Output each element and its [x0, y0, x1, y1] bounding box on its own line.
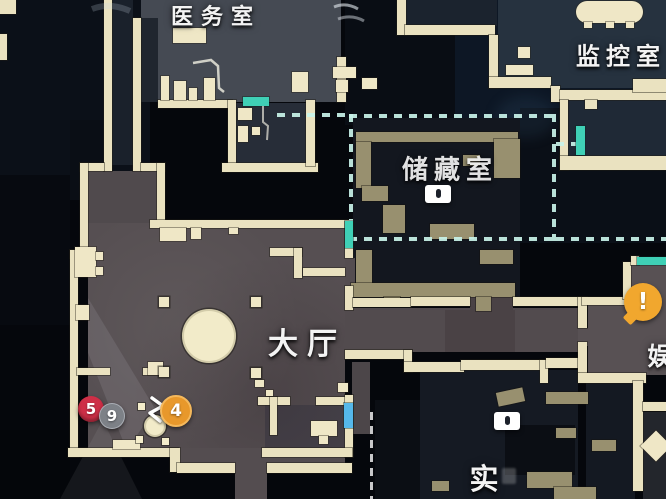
wall-segment — [345, 286, 353, 310]
furniture — [333, 67, 356, 78]
chair — [96, 267, 103, 275]
wall-olive — [383, 205, 405, 233]
minimap: 医务室 监控室 储藏室 大厅 娱 实 5 9 4 ! — [0, 0, 666, 499]
furniture-olive — [546, 392, 588, 404]
wall-olive — [356, 142, 371, 188]
wall-segment — [70, 250, 78, 457]
wall-segment — [222, 163, 318, 172]
wall-olive — [476, 297, 491, 311]
furniture-table — [75, 247, 96, 277]
furniture-olive — [527, 472, 572, 488]
pillar — [159, 367, 169, 377]
console-foot — [626, 22, 634, 28]
furniture — [238, 108, 252, 120]
wall-segment — [158, 100, 232, 108]
round-table — [182, 309, 236, 363]
player-count-marker-gray[interactable]: 9 — [99, 403, 125, 429]
furniture — [174, 81, 186, 100]
wall-segment — [177, 463, 235, 473]
room-floor-top-center — [405, 0, 497, 26]
wall-segment — [546, 358, 582, 368]
wall-segment — [633, 381, 643, 491]
alert-icon: ! — [638, 289, 649, 315]
wall-segment — [513, 297, 581, 306]
wall-olive — [362, 186, 388, 201]
furniture — [266, 390, 273, 396]
dashed-boundary — [277, 113, 349, 117]
wall-segment — [77, 368, 110, 375]
furniture-olive — [554, 487, 596, 499]
wall-olive — [351, 283, 515, 297]
wall-segment — [411, 297, 470, 306]
wall-segment — [405, 25, 495, 35]
furniture-olive — [432, 481, 449, 491]
furniture-olive — [556, 428, 576, 438]
wall-segment — [270, 397, 277, 435]
wall-segment — [157, 163, 165, 223]
wall-segment — [404, 362, 464, 372]
door-marker-teal[interactable] — [345, 221, 353, 248]
wall-segment — [633, 79, 666, 92]
furniture — [238, 126, 248, 142]
dashed-boundary — [552, 114, 556, 241]
door-marker-teal[interactable] — [576, 126, 585, 155]
furniture-desk — [311, 421, 337, 436]
furniture — [252, 127, 260, 135]
room-shadow — [141, 18, 158, 102]
console-foot — [584, 22, 592, 28]
wall-olive — [480, 250, 513, 264]
pillar — [251, 297, 261, 307]
chair — [96, 252, 103, 260]
wall-segment — [133, 18, 141, 171]
furniture — [362, 78, 377, 89]
furniture — [292, 72, 308, 92]
wall-olive — [356, 250, 372, 285]
corridor-shade — [445, 310, 515, 352]
wall-segment — [294, 248, 302, 278]
dashed-boundary — [556, 237, 666, 241]
furniture-desk-leg — [319, 436, 328, 444]
dashed-boundary-white — [370, 412, 373, 499]
corridor-floor-narrow — [352, 362, 370, 434]
room-label-entertainment: 娱 — [647, 337, 666, 373]
furniture — [255, 380, 264, 387]
wall-segment — [489, 77, 551, 88]
chair — [138, 403, 145, 410]
furniture — [336, 80, 348, 92]
furniture — [338, 383, 348, 392]
marker-value: 5 — [86, 400, 96, 418]
wall-segment — [150, 220, 353, 228]
wall-segment — [228, 100, 236, 168]
wall-segment — [345, 350, 412, 359]
wall-segment — [306, 100, 315, 166]
wall-segment — [303, 268, 345, 276]
wall-segment — [461, 360, 548, 370]
furniture — [191, 228, 201, 239]
furniture — [161, 76, 169, 100]
player-count-marker-orange[interactable]: 4 — [160, 395, 192, 427]
doorway-floor[interactable] — [345, 258, 355, 286]
room-label-monitoring: 监控室 — [576, 37, 666, 72]
door-marker-teal[interactable] — [637, 257, 666, 265]
furniture — [189, 88, 197, 100]
corridor-floor-south — [235, 463, 267, 499]
dashed-boundary — [349, 237, 556, 241]
furniture-olive — [592, 440, 616, 451]
furniture — [76, 305, 89, 320]
bg-patch — [0, 175, 70, 325]
room-floor-hall-upper — [88, 171, 157, 223]
furniture — [229, 228, 238, 234]
furniture — [160, 228, 186, 241]
wall-segment — [353, 298, 411, 307]
room-label-medical: 医务室 — [171, 0, 261, 31]
furniture — [518, 47, 530, 58]
wall-segment — [104, 0, 112, 171]
wall-segment — [551, 86, 560, 102]
door-marker-blue[interactable] — [344, 403, 353, 428]
console-desk — [576, 1, 643, 23]
pillar — [159, 297, 169, 307]
room-label-storage: 储藏室 — [402, 150, 498, 187]
corridor-floor-dark — [111, 0, 133, 165]
dashed-boundary — [349, 114, 555, 118]
alert-pin[interactable]: ! — [624, 283, 662, 321]
wall-segment — [0, 0, 16, 14]
room-label-hall: 大厅 — [268, 319, 346, 363]
pillar — [251, 368, 261, 378]
wall-segment — [267, 463, 352, 473]
bg-patch — [0, 430, 70, 499]
console-foot — [606, 22, 614, 28]
wall-segment — [585, 100, 597, 109]
door-marker-teal[interactable] — [243, 97, 269, 106]
wall-segment — [68, 448, 178, 457]
doorway-floor[interactable] — [345, 308, 357, 352]
chair — [136, 436, 143, 443]
wall-segment — [262, 448, 352, 457]
wall-segment — [0, 34, 7, 60]
faint-text-fragment — [502, 468, 516, 484]
marker-value: 4 — [170, 401, 182, 421]
chair — [162, 438, 169, 445]
furniture — [204, 78, 215, 100]
wall-segment — [560, 156, 666, 170]
wall-segment — [578, 342, 587, 375]
furniture — [506, 65, 533, 75]
marker-value: 9 — [107, 407, 117, 425]
wall-segment — [80, 163, 88, 258]
wall-segment — [643, 402, 666, 411]
room-label-laboratory: 实 — [469, 456, 498, 498]
dashed-boundary — [556, 142, 578, 146]
